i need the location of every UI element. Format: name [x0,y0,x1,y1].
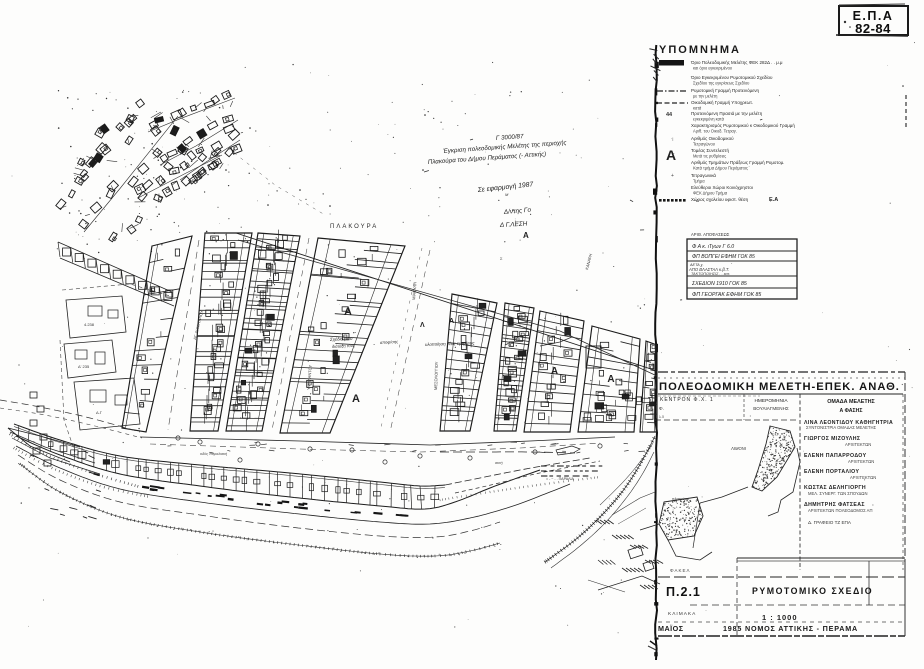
svg-text:Ρυμοτομική Γραμμή Προτεινόμενη: Ρυμοτομική Γραμμή Προτεινόμενη [691,87,760,93]
svg-text:Σχέδιο με ο: Σχέδιο με ο [329,335,353,342]
svg-text:οδός παραλιακή: οδός παραλιακή [200,452,227,456]
svg-text:ΣΧΕΔΙΟΝ 1910 ΓΟΚ 85: ΣΧΕΔΙΟΝ 1910 ΓΟΚ 85 [691,281,747,287]
svg-text:·|: ·| [671,136,673,141]
svg-text:Α: Α [344,306,352,318]
svg-text:Α ΦΑΣΗΣ: Α ΦΑΣΗΣ [839,408,862,414]
svg-text:με την μελέτη: με την μελέτη [693,94,718,99]
svg-text:ΑΡΧΙΤΕΚΤΩΝ: ΑΡΧΙΤΕΚΤΩΝ [850,475,876,480]
svg-text:Γ 3000/87: Γ 3000/87 [496,133,525,142]
svg-text:ΜΑΪΟΣ: ΜΑΪΟΣ [658,624,684,633]
svg-text:ΑΡΧΙΤΕΚΤΩΝ ΠΟΛΕΟΔΟΜΟΣ ΑΠ: ΑΡΧΙΤΕΚΤΩΝ ΠΟΛΕΟΔΟΜΟΣ ΑΠ [808,508,873,513]
svg-text:ΑΡΙΘ. ΑΠΟΦΑΣΕΩΣ: ΑΡΙΘ. ΑΠΟΦΑΣΕΩΣ [691,232,730,237]
svg-text:Αριθ. του Οικοδ. Τετραγ.: Αριθ. του Οικοδ. Τετραγ. [693,129,737,134]
svg-text:Τετραγώνου: Τετραγώνου [693,142,716,147]
svg-text:Ε.Α: Ε.Α [769,197,778,203]
svg-text:Φ Α κ. ιΤγων Γ 6.0: Φ Α κ. ιΤγων Γ 6.0 [692,244,734,250]
svg-text:διάταξη τους: διάταξη τους [332,343,356,349]
svg-text:ΜΕΛ. ΣΥΝΕΡΓ. ΤΩΝ ΣΠΟΥΔΩΝ: ΜΕΛ. ΣΥΝΕΡΓ. ΤΩΝ ΣΠΟΥΔΩΝ [808,491,867,496]
svg-text:Α: Α [352,393,360,405]
svg-text:ΚΑΝΑΡΗ: ΚΑΝΑΡΗ [584,253,593,270]
svg-text:ΛΙΜΟΝΙ: ΛΙΜΟΝΙ [730,446,747,451]
svg-text:Α: Α [551,366,558,377]
svg-text:Όριο Εγκεκριμένου Ρυμοτομικού: Όριο Εγκεκριμένου Ρυμοτομικού Σχεδίου [690,74,773,80]
svg-text:Τμήμα: Τμήμα [693,179,705,184]
svg-text:Α: Α [607,374,614,385]
svg-text:ΑΡΧΙΤΕΚΤΩΝ: ΑΡΧΙΤΕΚΤΩΝ [848,459,874,464]
svg-text:Α: Α [449,318,454,325]
svg-text:Προτεινόμενη Πρασιά με την μελ: Προτεινόμενη Πρασιά με την μελέτη [691,110,763,116]
svg-text:υλοποίηση νέας εγκρ/σεις: υλοποίηση νέας εγκρ/σεις [425,340,476,347]
svg-text:Τομέας Συντελεστή: Τομέας Συντελεστή [691,147,729,153]
svg-text:Δ Γ.ΛΕΣΗ: Δ Γ.ΛΕΣΗ [499,221,528,229]
svg-text:ΑΡΧΙΤΕΚΤΩΝ: ΑΡΧΙΤΕΚΤΩΝ [845,442,871,447]
svg-text:ΜΕΣΟΛΟΓΓΙΟΥ: ΜΕΣΟΛΟΓΓΙΟΥ [433,361,439,390]
svg-text:= - ~ - . ΠΑΡΑΛΙΑ: = - ~ - . ΠΑΡΑΛΙΑ [546,477,574,481]
svg-text:4.238: 4.238 [84,322,95,327]
svg-text:ΣΥΝΤΟΝΙΣΤΡΙΑ ΟΜΑΔΑΣ ΜΕΛΕΤΗΣ: ΣΥΝΤΟΝΙΣΤΡΙΑ ΟΜΑΔΑΣ ΜΕΛΕΤΗΣ [806,425,876,430]
svg-text:Δ. ΓΡΑΦΕΙΟ ΤΖ ΕΠΑ: Δ. ΓΡΑΦΕΙΟ ΤΖ ΕΠΑ [808,520,852,525]
svg-text:και όριο εγκεκριμένου: και όριο εγκεκριμένου [693,66,733,71]
svg-text:πλακούρα: πλακούρα [672,497,690,501]
svg-text:Όριο Πολεοδομικής Μελέτης ΦΕΚ: Όριο Πολεοδομικής Μελέτης ΦΕΚ 282Δ . . μ… [690,59,783,65]
svg-text:44: 44 [666,112,673,118]
svg-text:ΦΑΚΕΛ: ΦΑΚΕΛ [670,568,690,573]
svg-text:1985 ΝΟΜΟΣ ΑΤΤΙΚΗΣ - ΠΕΡΑΜΑ: 1985 ΝΟΜΟΣ ΑΤΤΙΚΗΣ - ΠΕΡΑΜΑ [723,624,858,633]
svg-text:ΚΕΝΤΡΟΝ Φ.Χ. 1: ΚΕΝΤΡΟΝ Φ.Χ. 1 [660,397,714,403]
svg-text:Α: Α [666,147,676,163]
svg-text:ΥΨΗΛΑΝΤΟΥ: ΥΨΗΛΑΝΤΟΥ [306,364,313,390]
svg-text:Ελεύθεροι Χώροι Κοινόχρηστοι: Ελεύθεροι Χώροι Κοινόχρηστοι [691,184,753,190]
svg-text:+: + [671,173,674,179]
svg-text:κατά: κατά [693,106,702,111]
svg-text:Χαρακτηρισμός Ρυμοτομικού κ Οι: Χαρακτηρισμός Ρυμοτομικού κ Οικοδομικού … [691,122,795,128]
svg-text:ΠΛΑΚΟΥΡΑ: ΠΛΑΚΟΥΡΑ [330,224,378,230]
svg-text:Α: Α [523,231,529,240]
svg-text:ΦΕΚ Δήμου Τμήμα: ΦΕΚ Δήμου Τμήμα [693,191,728,196]
svg-text:Δ' 235: Δ' 235 [78,364,90,369]
svg-text:Λ: Λ [420,322,425,329]
svg-text:ΤΑΚΤΟΠΟΙΗΣΙΣ . .: ΤΑΚΤΟΠΟΙΗΣΙΣ . . κατ. [691,272,730,276]
svg-text:· · Δ · ·: · · Δ · · [691,198,704,203]
svg-text:ΥΠΟΜΝΗΜΑ: ΥΠΟΜΝΗΜΑ [659,44,741,56]
svg-text:Τετραγωνικά: Τετραγωνικά [691,172,716,178]
svg-text:ακτή: ακτή [495,461,503,465]
svg-text:Μετά τις ρυθμίσεις: Μετά τις ρυθμίσεις [693,154,726,159]
svg-text:λ.δ: λ.δ [659,415,664,419]
svg-text:Αριθμός Τμημάτων Πράξεως Γραμμ: Αριθμός Τμημάτων Πράξεως Γραμμή Ρυμοτομ. [691,159,784,165]
svg-text:ΟΜΑΔΑ ΜΕΛΕΤΗΣ: ΟΜΑΔΑ ΜΕΛΕΤΗΣ [827,399,875,405]
svg-text:Σχεδίου της εγκρίσεως Σχεδίου: Σχεδίου της εγκρίσεως Σχεδίου [693,81,750,86]
svg-text:Δ.Γ: Δ.Γ [96,410,103,415]
svg-text:Μ: Μ [505,192,509,197]
svg-text:εγκεκριμένη κατά: εγκεκριμένη κατά [693,117,725,122]
svg-text:Σ: Σ [500,256,503,261]
svg-text:ΦΠ ΓΕΟΡΓΑΚ ΕΦΗΜ ΓΟΚ 85: ΦΠ ΓΕΟΡΓΑΚ ΕΦΗΜ ΓΟΚ 85 [692,292,761,298]
svg-text:Αριθμός Οικοδομικού: Αριθμός Οικοδομικού [691,135,734,141]
svg-text:ΗΜΕΡΟΜΗΝΙΑ: ΗΜΕΡΟΜΗΝΙΑ [754,398,788,404]
svg-text:ΡΥΜΟΤΟΜΙΚΟ ΣΧΕΔΙΟ: ΡΥΜΟΤΟΜΙΚΟ ΣΧΕΔΙΟ [752,586,873,596]
svg-text:Δ/ντης Γο: Δ/ντης Γο [503,207,532,216]
svg-text:1 : 1000: 1 : 1000 [762,613,798,622]
svg-text:82-84: 82-84 [855,21,891,36]
svg-text:Κατά τμήμα Δήμου Περάματος: Κατά τμήμα Δήμου Περάματος [693,166,748,171]
svg-text:ΦΠ ΒΟΠΓΕΙ ΕΦΗΜ ΓΟΚ 85: ΦΠ ΒΟΠΓΕΙ ΕΦΗΜ ΓΟΚ 85 [692,254,755,260]
svg-text:αποφ/σης: αποφ/σης [380,339,399,345]
svg-text:ΠΟΛΕΟΔΟΜΙΚΗ ΜΕΛΕΤΗ-ΕΠΕΚ. ΑΝΑΘ.: ΠΟΛΕΟΔΟΜΙΚΗ ΜΕΛΕΤΗ-ΕΠΕΚ. ΑΝΑΘ. [659,381,900,393]
svg-text:Φ.: Φ. [659,406,664,411]
svg-text:Π.2.1: Π.2.1 [666,585,701,599]
svg-text:Οικοδομική Γραμμή Υποχρεωτ.: Οικοδομική Γραμμή Υποχρεωτ. [691,99,753,105]
svg-text:ΚΛΙΜΑΚΑ: ΚΛΙΜΑΚΑ [668,611,696,617]
svg-text:ΒΟΥΛΙΑΓΜΕΝΗΣ: ΒΟΥΛΙΑΓΜΕΝΗΣ [753,406,789,411]
